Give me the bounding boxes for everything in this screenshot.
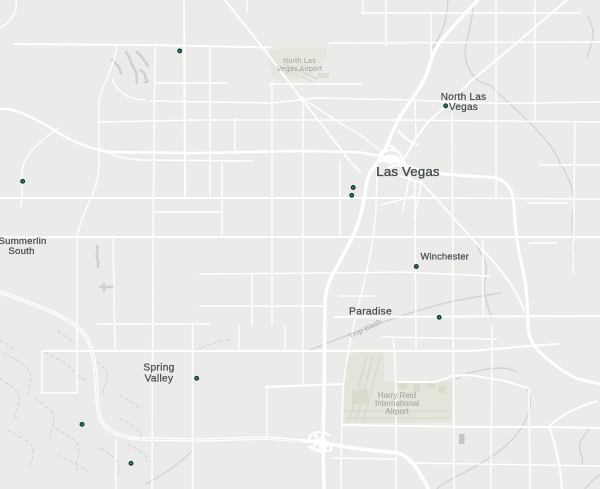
svg-text:Las Vegas: Las Vegas	[376, 164, 440, 179]
svg-text:North Las: North Las	[283, 58, 316, 65]
svg-text:Airport: Airport	[385, 407, 409, 416]
svg-text:Spring: Spring	[143, 363, 174, 374]
svg-text:Winchester: Winchester	[421, 251, 469, 262]
svg-text:Vegas Airport: Vegas Airport	[277, 66, 323, 73]
svg-text:Vegas: Vegas	[449, 102, 478, 113]
svg-text:Paradise: Paradise	[349, 307, 392, 318]
svg-text:Valley: Valley	[145, 374, 174, 385]
svg-text:South: South	[8, 246, 34, 257]
